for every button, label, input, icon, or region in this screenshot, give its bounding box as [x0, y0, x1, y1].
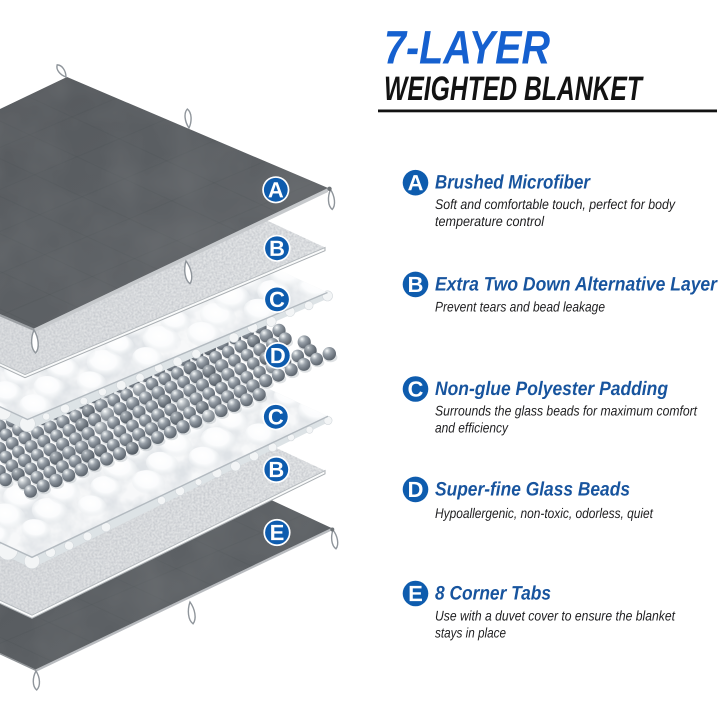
svg-text:Use with a duvet cover to ensu: Use with a duvet cover to ensure the bla…	[435, 608, 676, 624]
svg-text:Hypoallergenic, non-toxic, odo: Hypoallergenic, non-toxic, odorless, qui…	[435, 505, 654, 521]
svg-text:Surrounds the glass beads for: Surrounds the glass beads for maximum co…	[435, 403, 698, 419]
svg-text:Brushed Microfiber: Brushed Microfiber	[435, 172, 591, 194]
svg-text:Extra Two Down Alternative Lay: Extra Two Down Alternative Layer	[435, 273, 718, 295]
svg-text:temperature control: temperature control	[435, 213, 545, 229]
svg-text:7-LAYER: 7-LAYER	[384, 21, 550, 74]
svg-text:Super-fine Glass Beads: Super-fine Glass Beads	[435, 478, 630, 500]
svg-text:8 Corner Tabs: 8 Corner Tabs	[435, 582, 551, 604]
svg-text:stays in place: stays in place	[435, 625, 506, 641]
svg-text:and efficiency: and efficiency	[435, 420, 509, 436]
svg-text:WEIGHTED BLANKET: WEIGHTED BLANKET	[384, 70, 644, 108]
svg-text:Non-glue Polyester Padding: Non-glue Polyester Padding	[435, 378, 668, 400]
svg-text:Soft and comfortable touch, pe: Soft and comfortable touch, perfect for …	[435, 196, 676, 212]
svg-text:Prevent tears and bead leakage: Prevent tears and bead leakage	[435, 299, 605, 315]
